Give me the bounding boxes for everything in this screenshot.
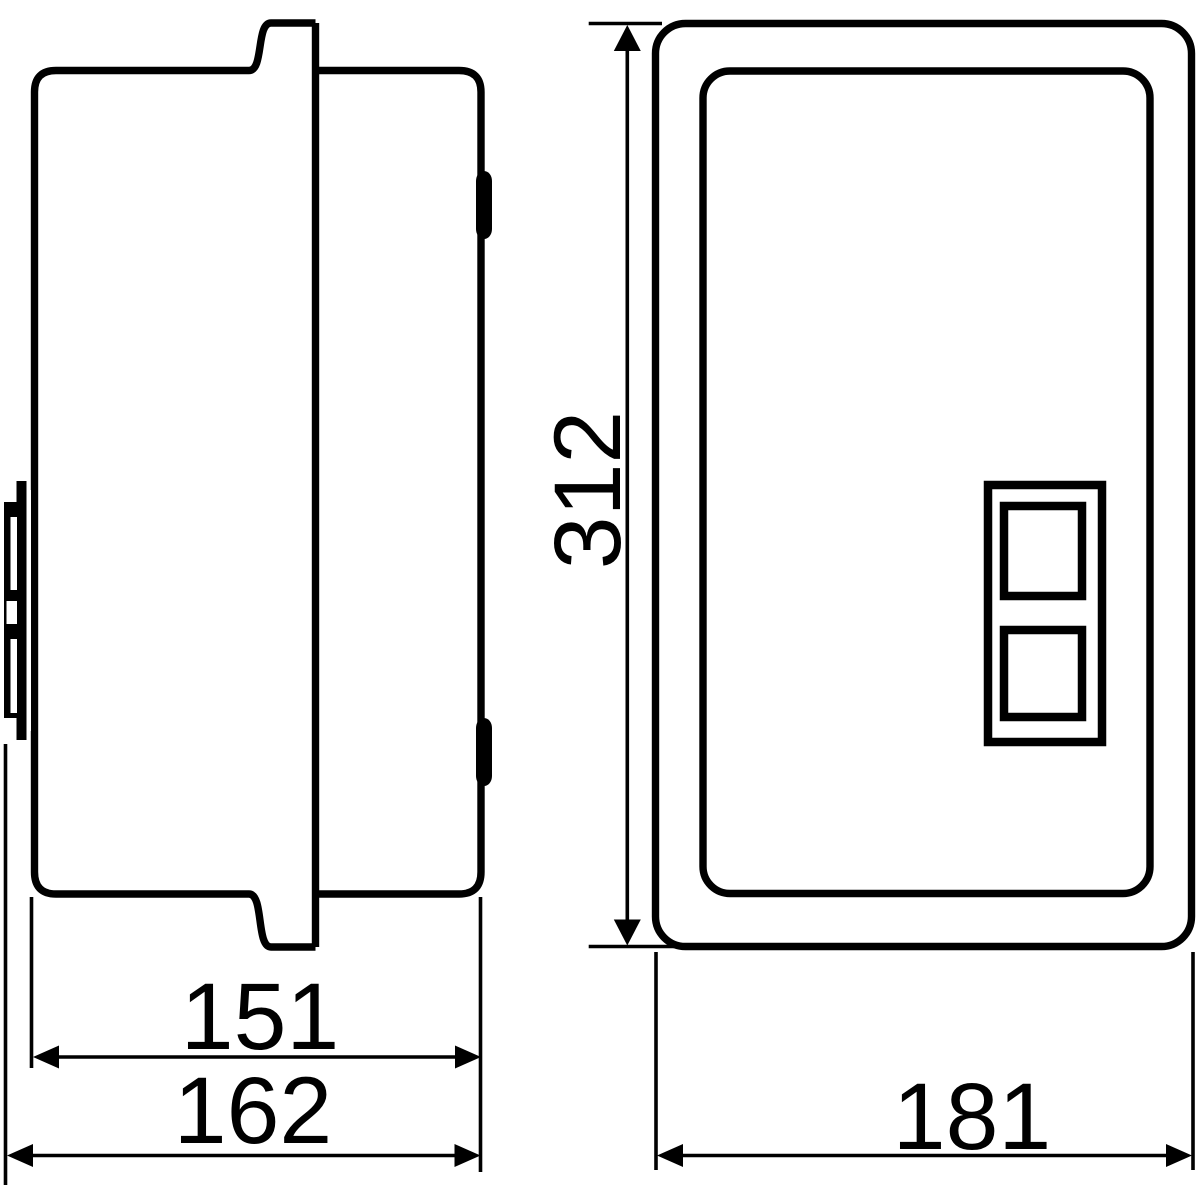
svg-text:151: 151 [181,964,340,1070]
svg-text:312: 312 [535,411,641,570]
svg-text:181: 181 [893,1064,1052,1170]
svg-text:162: 162 [174,1058,333,1164]
